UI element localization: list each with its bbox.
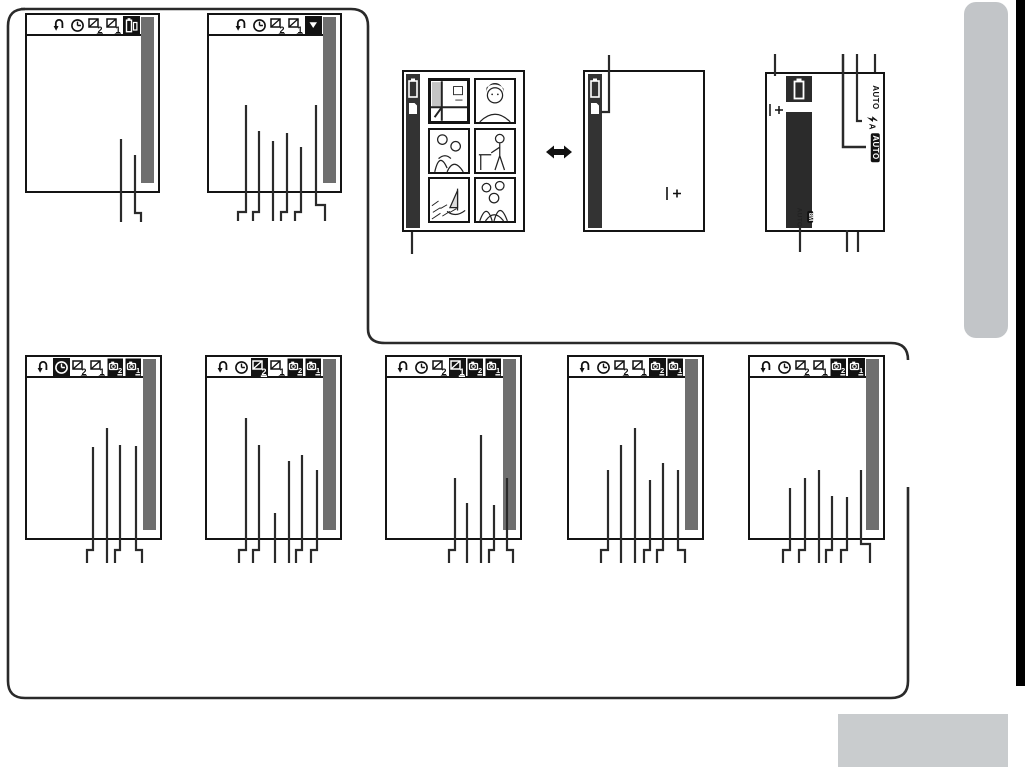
menu-icon-return bbox=[35, 358, 52, 377]
menu-icon-clock-selected bbox=[53, 358, 70, 377]
menu-icon-frame1: 1 bbox=[631, 358, 648, 377]
spot-meter-mark bbox=[665, 186, 682, 201]
mode-label: AUTO bbox=[862, 83, 888, 111]
camera-menu-screen-bottom-5: 2121 bbox=[748, 355, 885, 540]
menu-icon-frame2: 2 bbox=[87, 16, 104, 35]
menu-icon-cam2: 2 bbox=[467, 358, 484, 377]
menu-icon-cam1-selected: 1 bbox=[848, 358, 865, 377]
menu-icon-frame1: 1 bbox=[269, 358, 286, 377]
auto-mode-badge: AUTO bbox=[862, 133, 888, 161]
side-index-tab bbox=[964, 2, 1008, 338]
menu-icon-cam1: 1 bbox=[667, 358, 684, 377]
menu-icon-clock bbox=[595, 358, 612, 377]
monitor-screen bbox=[583, 70, 705, 232]
svg-text:1: 1 bbox=[316, 366, 320, 375]
memory-card-icon bbox=[590, 102, 600, 115]
menu-scrollbar bbox=[503, 359, 516, 530]
menu-icon-clock bbox=[233, 358, 250, 377]
battery-icon bbox=[793, 78, 805, 100]
svg-text:2: 2 bbox=[298, 366, 302, 375]
scene-thumbnail-couple bbox=[428, 128, 470, 174]
spot-meter-mark bbox=[768, 103, 784, 117]
menu-icon-row: 2121 bbox=[577, 358, 684, 377]
menu-icon-frame1: 1 bbox=[812, 358, 829, 377]
menu-icon-frame2: 2 bbox=[794, 358, 811, 377]
menu-icon-tridown-selected bbox=[305, 16, 322, 35]
menu-icon-return bbox=[758, 358, 775, 377]
page-footer-block bbox=[838, 714, 1008, 767]
menu-icon-frame1: 1 bbox=[105, 16, 122, 35]
menu-icon-return bbox=[577, 358, 594, 377]
scene-thumbnail-boat-landscape bbox=[428, 177, 470, 223]
svg-text:1: 1 bbox=[136, 366, 140, 375]
scene-thumbnail-building-interior-selected bbox=[428, 78, 470, 124]
menu-icon-row: 2121 bbox=[758, 358, 865, 377]
auto-mode-screen: AUTO A AUTO AUTO 8M bbox=[765, 72, 885, 232]
menu-scrollbar bbox=[866, 359, 879, 530]
image-size-indicator: AUTO 8M bbox=[794, 204, 814, 230]
camera-menu-screen-bottom-2: 2121 bbox=[205, 355, 342, 540]
scene-thumbnail-group-photo bbox=[474, 177, 516, 223]
menu-icon-frame1: 1 bbox=[287, 16, 304, 35]
scene-thumbnail-portrait-face bbox=[474, 78, 516, 124]
camera-menu-screen-bottom-1: 2121 bbox=[25, 355, 162, 540]
svg-text:1: 1 bbox=[496, 366, 500, 375]
svg-text:2: 2 bbox=[841, 366, 845, 375]
menu-icon-frame2-selected: 2 bbox=[251, 358, 268, 377]
svg-text:2: 2 bbox=[660, 366, 664, 375]
battery-icon bbox=[590, 78, 600, 98]
menu-icon-return bbox=[51, 16, 68, 35]
menu-icon-frame2: 2 bbox=[613, 358, 630, 377]
menu-icon-clock bbox=[776, 358, 793, 377]
svg-text:1: 1 bbox=[859, 366, 863, 375]
memory-card-icon bbox=[408, 102, 418, 115]
menu-icon-frame2: 2 bbox=[71, 358, 88, 377]
menu-icon-cam2-selected: 2 bbox=[649, 358, 666, 377]
menu-icon-cam2: 2 bbox=[287, 358, 304, 377]
menu-icon-frame2: 2 bbox=[431, 358, 448, 377]
menu-icon-cam1: 1 bbox=[125, 358, 142, 377]
menu-icon-frame1-selected: 1 bbox=[449, 358, 466, 377]
menu-icon-cam1: 1 bbox=[305, 358, 322, 377]
menu-icon-frame1: 1 bbox=[89, 358, 106, 377]
menu-icon-clock bbox=[413, 358, 430, 377]
scene-thumbnail-person-standing bbox=[474, 128, 516, 174]
menu-icon-clock bbox=[251, 16, 268, 35]
menu-icon-return bbox=[395, 358, 412, 377]
page-edge-strip bbox=[1016, 0, 1025, 686]
camera-menu-screen-bottom-3: 2121 bbox=[385, 355, 522, 540]
menu-scrollbar bbox=[323, 17, 336, 183]
menu-icon-row: 2121 bbox=[215, 358, 322, 377]
menu-icon-row: 21 bbox=[233, 16, 322, 35]
menu-scrollbar bbox=[143, 359, 156, 530]
menu-icon-row: 2121 bbox=[395, 358, 502, 377]
menu-scrollbar bbox=[323, 359, 336, 530]
scene-select-screen bbox=[402, 70, 525, 232]
manual-diagram-page: 212121212121212121212121 bbox=[0, 0, 1025, 767]
svg-text:2: 2 bbox=[118, 366, 122, 375]
menu-icon-clock bbox=[69, 16, 86, 35]
menu-icon-row: 2121 bbox=[35, 358, 142, 377]
menu-icon-frame2: 2 bbox=[269, 16, 286, 35]
menu-icon-cam1: 1 bbox=[485, 358, 502, 377]
menu-icon-cam2: 2 bbox=[107, 358, 124, 377]
camera-menu-screen-top-1: 21 bbox=[25, 13, 160, 193]
lightning-bolt-icon bbox=[867, 115, 878, 122]
battery-icon bbox=[408, 78, 418, 98]
menu-icon-return bbox=[215, 358, 232, 377]
menu-icon-battcard-selected bbox=[123, 16, 140, 35]
flash-auto-icon: A bbox=[859, 109, 885, 135]
menu-scrollbar bbox=[685, 359, 698, 530]
menu-icon-row: 21 bbox=[51, 16, 140, 35]
svg-text:1: 1 bbox=[678, 366, 682, 375]
camera-menu-screen-top-2: 21 bbox=[207, 13, 342, 193]
menu-icon-return bbox=[233, 16, 250, 35]
swap-arrow-icon bbox=[545, 142, 573, 162]
menu-scrollbar bbox=[141, 17, 154, 183]
svg-text:2: 2 bbox=[478, 366, 482, 375]
camera-menu-screen-bottom-4: 2121 bbox=[567, 355, 704, 540]
menu-icon-cam2: 2 bbox=[830, 358, 847, 377]
